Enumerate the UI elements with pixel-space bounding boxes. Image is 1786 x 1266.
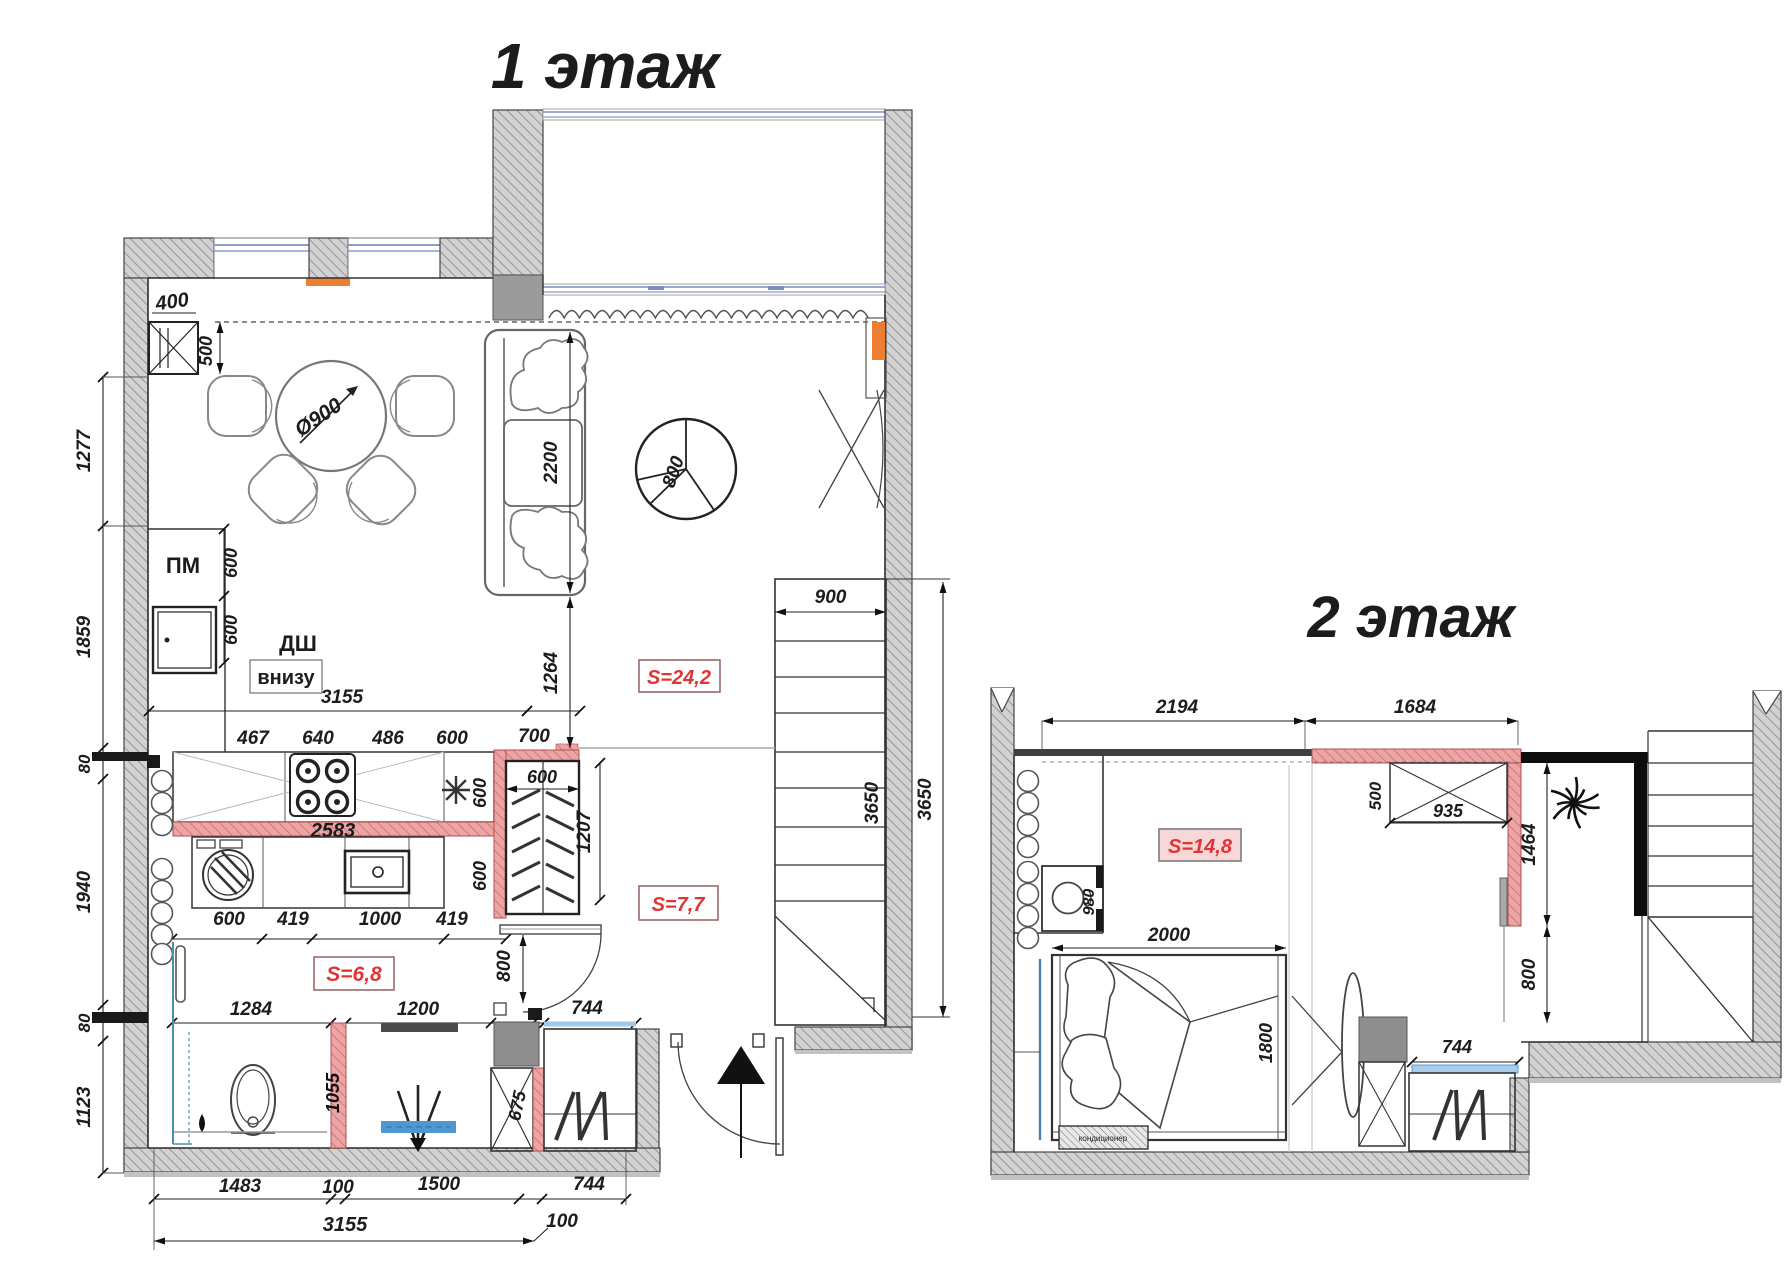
svg-text:500: 500: [196, 336, 216, 366]
svg-text:S=24,2: S=24,2: [647, 667, 711, 689]
svg-text:467: 467: [236, 728, 270, 749]
svg-text:2000: 2000: [1147, 925, 1191, 946]
svg-text:419: 419: [435, 909, 468, 930]
svg-text:3155: 3155: [321, 687, 364, 708]
svg-text:1277: 1277: [74, 428, 95, 472]
svg-text:1264: 1264: [541, 651, 562, 694]
svg-text:1200: 1200: [397, 999, 440, 1020]
svg-text:640: 640: [302, 728, 334, 749]
svg-text:500: 500: [1366, 781, 1385, 810]
svg-text:1859: 1859: [74, 615, 95, 658]
svg-text:419: 419: [276, 909, 309, 930]
svg-text:ПМ: ПМ: [166, 553, 200, 578]
svg-text:600: 600: [221, 615, 241, 645]
svg-text:744: 744: [1442, 1037, 1472, 1057]
svg-text:600: 600: [436, 728, 468, 749]
svg-text:800: 800: [1519, 958, 1540, 990]
svg-text:S=6,8: S=6,8: [326, 963, 382, 986]
svg-text:900: 900: [815, 587, 847, 608]
svg-text:80: 80: [75, 1013, 94, 1032]
svg-text:100: 100: [322, 1177, 354, 1198]
svg-text:486: 486: [371, 728, 404, 749]
svg-text:2194: 2194: [1155, 697, 1199, 718]
svg-text:1123: 1123: [74, 1086, 95, 1127]
svg-text:1464: 1464: [1519, 823, 1540, 866]
svg-text:ДШ: ДШ: [279, 631, 317, 656]
svg-text:1055: 1055: [323, 1072, 343, 1113]
svg-text:100: 100: [546, 1211, 578, 1232]
svg-text:3155: 3155: [323, 1214, 368, 1236]
svg-text:1 этаж: 1 этаж: [491, 30, 722, 102]
svg-text:1940: 1940: [74, 870, 95, 913]
svg-text:S=7,7: S=7,7: [652, 894, 706, 916]
svg-text:600: 600: [470, 778, 490, 808]
svg-text:1800: 1800: [1256, 1023, 1276, 1063]
svg-text:3650: 3650: [862, 781, 883, 824]
svg-text:3650: 3650: [915, 778, 936, 821]
svg-text:1684: 1684: [1394, 697, 1437, 718]
svg-text:1483: 1483: [219, 1176, 262, 1197]
svg-text:800: 800: [494, 950, 515, 982]
svg-text:600: 600: [470, 861, 490, 891]
svg-text:600: 600: [221, 548, 241, 578]
svg-text:744: 744: [571, 998, 603, 1019]
svg-text:935: 935: [1433, 801, 1464, 821]
svg-text:внизу: внизу: [257, 667, 315, 689]
svg-text:2 этаж: 2 этаж: [1307, 585, 1518, 650]
svg-text:кондиционер: кондиционер: [1079, 1134, 1128, 1143]
svg-text:700: 700: [518, 726, 550, 747]
svg-text:1207: 1207: [574, 809, 595, 853]
svg-text:2200: 2200: [541, 441, 562, 485]
svg-text:744: 744: [573, 1174, 605, 1195]
svg-text:600: 600: [527, 767, 557, 787]
svg-text:80: 80: [75, 754, 94, 773]
svg-text:980: 980: [1081, 889, 1098, 916]
svg-text:1284: 1284: [230, 999, 273, 1020]
svg-text:1000: 1000: [359, 909, 402, 930]
svg-text:S=14,8: S=14,8: [1168, 836, 1233, 858]
svg-text:600: 600: [213, 909, 245, 930]
svg-text:1500: 1500: [418, 1174, 461, 1195]
